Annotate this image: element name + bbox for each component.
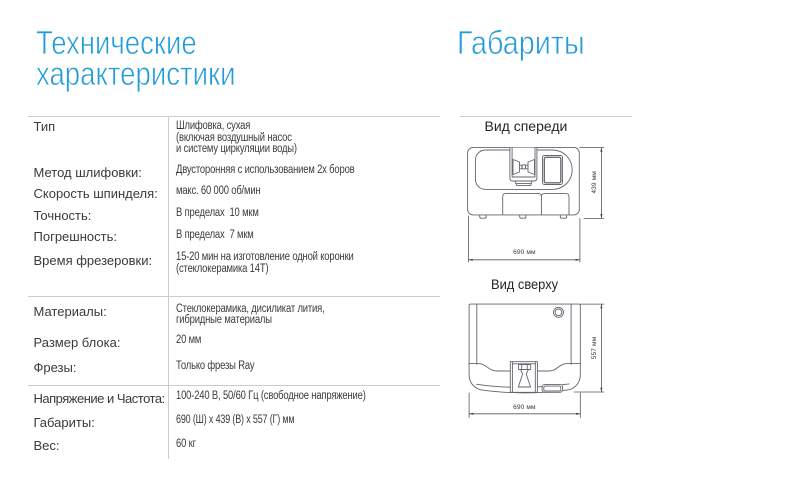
svg-text:690 мм: 690 мм (513, 404, 536, 411)
svg-text:557 мм: 557 мм (591, 336, 598, 359)
svg-text:439 мм: 439 мм (591, 171, 598, 194)
svg-text:690 мм: 690 мм (513, 249, 536, 256)
